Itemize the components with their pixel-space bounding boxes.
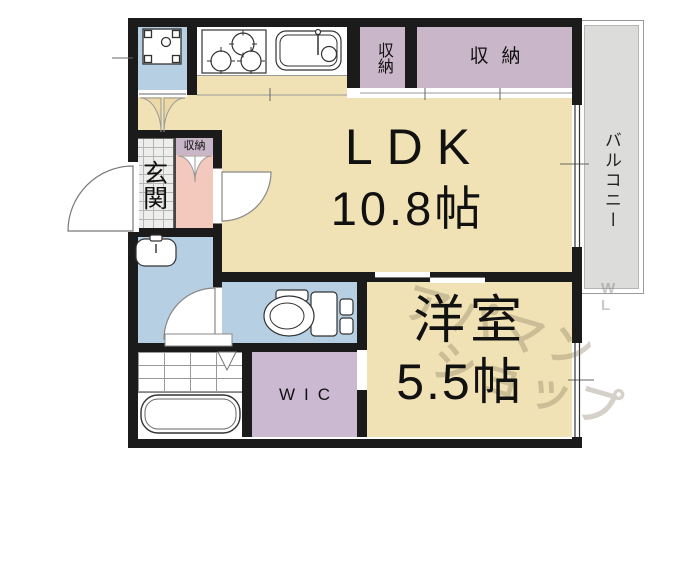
laundry-slide-band — [138, 90, 187, 97]
entry-door-swing — [68, 166, 133, 231]
wall-hall-top — [133, 130, 222, 138]
balcony-label: バルコニー — [585, 92, 637, 270]
ldk-sliding-door-panel2 — [430, 277, 485, 283]
western-room-window — [572, 343, 582, 437]
western-room-label: 洋室 — [367, 292, 573, 350]
wall-bottom — [128, 439, 582, 448]
wall-laundry-kitchen — [187, 18, 197, 95]
bathroom-tile-grid — [138, 352, 242, 393]
wall-washroom-top — [133, 228, 222, 237]
ldk-window — [572, 105, 582, 247]
wall-between-storages — [405, 18, 417, 88]
wall-kitchen-storage — [347, 18, 360, 88]
storage-small-label: 収納 — [360, 32, 405, 84]
storage-wide-label: 収納 — [417, 44, 573, 70]
toilet-room-floor — [222, 282, 357, 343]
ldk-sliding-door-panel1 — [375, 272, 430, 278]
ldk-label: LDK — [242, 118, 573, 176]
storage-slide-band — [347, 88, 573, 98]
ldk-area-label: 10.8帖 — [242, 182, 573, 236]
entrance-label: 玄関 — [133, 146, 174, 224]
wall-bath-wic — [242, 343, 252, 437]
western-room-area-label: 5.5帖 — [357, 352, 563, 412]
floorplan-canvas: アパマン ショップ W L LDK 10.8帖 洋室 5.5帖 WIC 玄関 収… — [0, 0, 690, 575]
washroom-floor — [138, 237, 213, 343]
laundry-room-floor — [138, 27, 187, 90]
kitchen-counter — [197, 27, 347, 76]
ldk-door-opening — [213, 168, 222, 224]
hall-closet-label: 収納 — [176, 139, 213, 154]
toilet-door-opening — [213, 287, 222, 339]
wic-label: WIC — [252, 384, 357, 406]
